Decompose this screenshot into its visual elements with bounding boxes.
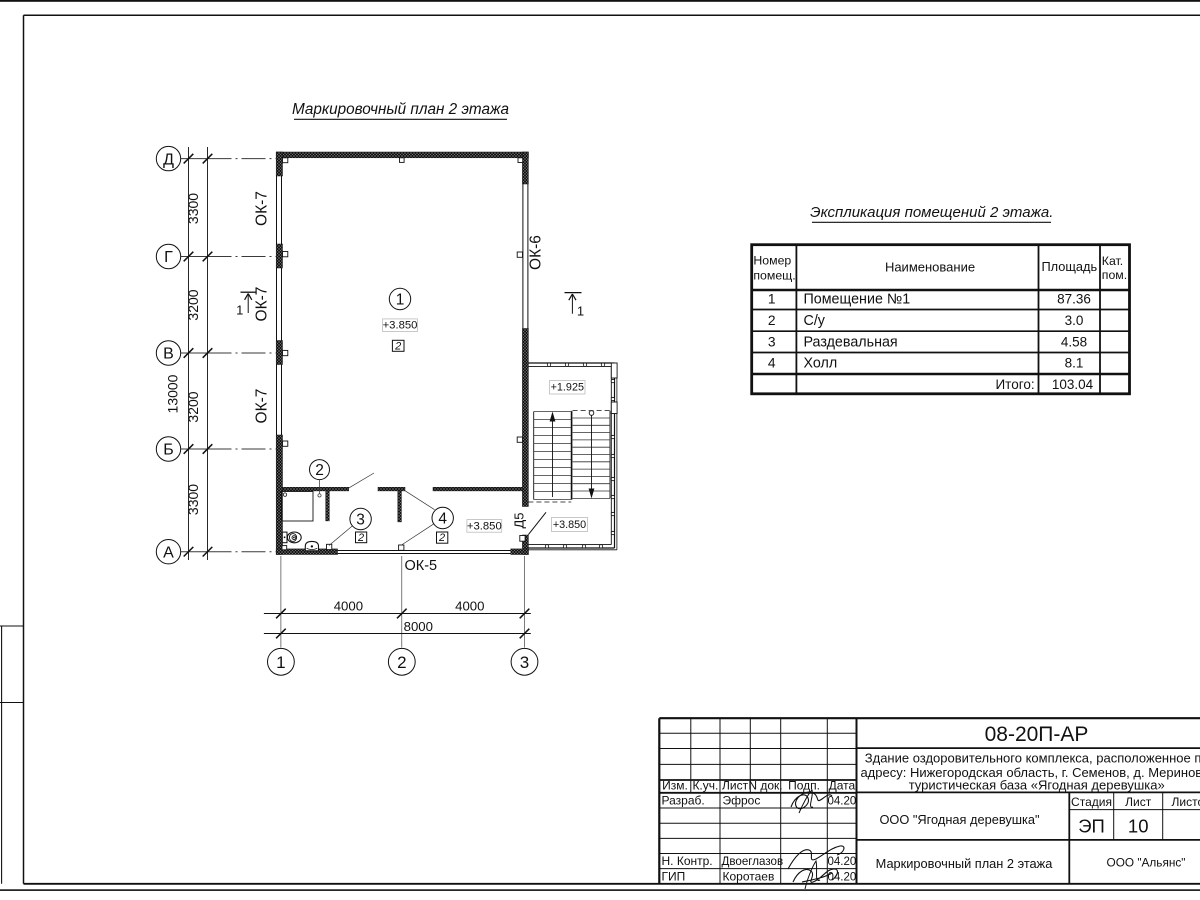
svg-text:2: 2 <box>357 532 364 544</box>
svg-text:Листов: Листов <box>1172 795 1200 809</box>
svg-text:Кат.: Кат. <box>1102 254 1123 268</box>
svg-text:N док.: N док. <box>748 779 782 793</box>
svg-text:+3.850: +3.850 <box>467 520 502 532</box>
svg-text:3: 3 <box>768 334 776 349</box>
svg-text:ООО "Ягодная деревушка": ООО "Ягодная деревушка" <box>879 812 1039 827</box>
svg-text:1: 1 <box>236 303 243 318</box>
svg-text:Стадия: Стадия <box>1071 795 1112 809</box>
svg-text:ЭП: ЭП <box>1078 816 1105 837</box>
svg-text:3: 3 <box>520 653 529 672</box>
svg-text:Дата: Дата <box>829 779 856 793</box>
svg-text:Лист: Лист <box>1125 795 1152 809</box>
svg-text:1: 1 <box>577 304 584 319</box>
svg-text:103.04: 103.04 <box>1052 377 1094 392</box>
svg-text:+3.850: +3.850 <box>553 519 586 531</box>
svg-text:помещ.: помещ. <box>753 268 795 282</box>
svg-text:2: 2 <box>397 653 406 672</box>
svg-text:Разраб.: Разраб. <box>662 794 705 808</box>
svg-text:Здание оздоровительного компле: Здание оздоровительного комплекса, распо… <box>865 751 1200 766</box>
svg-text:Лист: Лист <box>722 779 749 793</box>
svg-text:+3.850: +3.850 <box>383 320 418 332</box>
svg-text:Номер: Номер <box>753 253 791 267</box>
svg-text:3: 3 <box>356 512 365 529</box>
svg-text:Двоеглазов: Двоеглазов <box>722 855 784 868</box>
svg-text:А: А <box>163 544 174 561</box>
svg-text:2: 2 <box>394 340 401 352</box>
svg-text:Подп.: Подп. <box>788 779 820 793</box>
svg-text:4: 4 <box>438 511 447 528</box>
svg-text:ГИП: ГИП <box>662 869 686 883</box>
svg-text:87.36: 87.36 <box>1057 291 1091 306</box>
svg-text:пом.: пом. <box>1102 268 1127 282</box>
svg-text:Маркировочный план 2 этажа: Маркировочный план 2 этажа <box>876 856 1054 871</box>
svg-text:Г: Г <box>164 249 173 266</box>
svg-text:Раздевальная: Раздевальная <box>804 334 898 350</box>
svg-text:08-20П-АР: 08-20П-АР <box>985 723 1089 746</box>
svg-text:ООО "Альянс": ООО "Альянс" <box>1107 856 1186 870</box>
svg-text:04.20: 04.20 <box>828 796 857 808</box>
svg-text:10: 10 <box>1128 816 1149 837</box>
svg-text:Площадь: Площадь <box>1041 259 1097 274</box>
svg-text:ОК-5: ОК-5 <box>404 558 437 574</box>
svg-text:2: 2 <box>315 462 324 479</box>
svg-text:Холл: Холл <box>804 356 838 372</box>
svg-text:Маркировочный план 2 этажа: Маркировочный план 2 этажа <box>292 101 509 118</box>
svg-text:3200: 3200 <box>185 289 201 320</box>
svg-text:Итого:: Итого: <box>995 377 1034 392</box>
svg-text:туристическая база «Ягодная де: туристическая база «Ягодная деревушка» <box>909 777 1165 792</box>
svg-text:Изм.: Изм. <box>662 779 688 793</box>
svg-text:3.0: 3.0 <box>1065 313 1084 328</box>
svg-text:ОК-7: ОК-7 <box>254 287 271 322</box>
svg-text:Экспликация помещений 2 этажа.: Экспликация помещений 2 этажа. <box>810 204 1053 221</box>
svg-text:В: В <box>163 346 174 363</box>
svg-text:Б: Б <box>163 442 174 459</box>
svg-text:Коротаев: Коротаев <box>723 869 775 883</box>
svg-text:Н. Контр.: Н. Контр. <box>662 854 713 868</box>
svg-text:2: 2 <box>438 532 445 544</box>
svg-text:Эфрос: Эфрос <box>723 794 761 808</box>
svg-text:8.1: 8.1 <box>1065 356 1084 371</box>
svg-text:К.уч.: К.уч. <box>692 779 718 793</box>
svg-text:Наименование: Наименование <box>885 260 975 275</box>
svg-text:4: 4 <box>768 356 776 371</box>
svg-text:4000: 4000 <box>334 599 363 614</box>
svg-text:ОК-7: ОК-7 <box>254 389 271 424</box>
svg-text:13000: 13000 <box>165 374 181 413</box>
svg-text:04.20: 04.20 <box>828 856 857 868</box>
svg-text:Д: Д <box>163 151 174 168</box>
svg-text:3200: 3200 <box>185 391 201 422</box>
svg-text:+1.925: +1.925 <box>551 382 584 394</box>
svg-text:4.58: 4.58 <box>1061 334 1087 349</box>
svg-text:3300: 3300 <box>185 193 201 224</box>
svg-text:8000: 8000 <box>404 619 433 634</box>
svg-text:3300: 3300 <box>185 484 201 515</box>
svg-text:ОК-7: ОК-7 <box>254 191 271 226</box>
svg-text:Помещение №1: Помещение №1 <box>804 291 911 307</box>
svg-text:1: 1 <box>276 653 285 672</box>
svg-text:2: 2 <box>768 313 776 328</box>
svg-text:4000: 4000 <box>455 599 484 614</box>
svg-text:Д5: Д5 <box>512 512 527 528</box>
svg-text:С/у: С/у <box>804 313 826 329</box>
svg-text:ОК-6: ОК-6 <box>527 235 544 270</box>
svg-text:1: 1 <box>768 291 776 306</box>
svg-text:1: 1 <box>396 292 405 309</box>
